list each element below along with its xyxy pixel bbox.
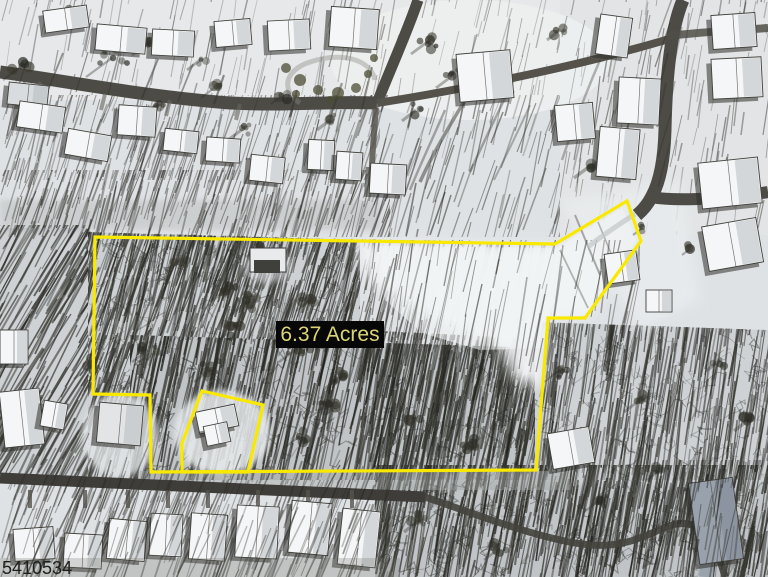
svg-text:6.37 Acres: 6.37 Acres [280,323,379,346]
svg-text:5410534: 5410534 [2,558,72,577]
